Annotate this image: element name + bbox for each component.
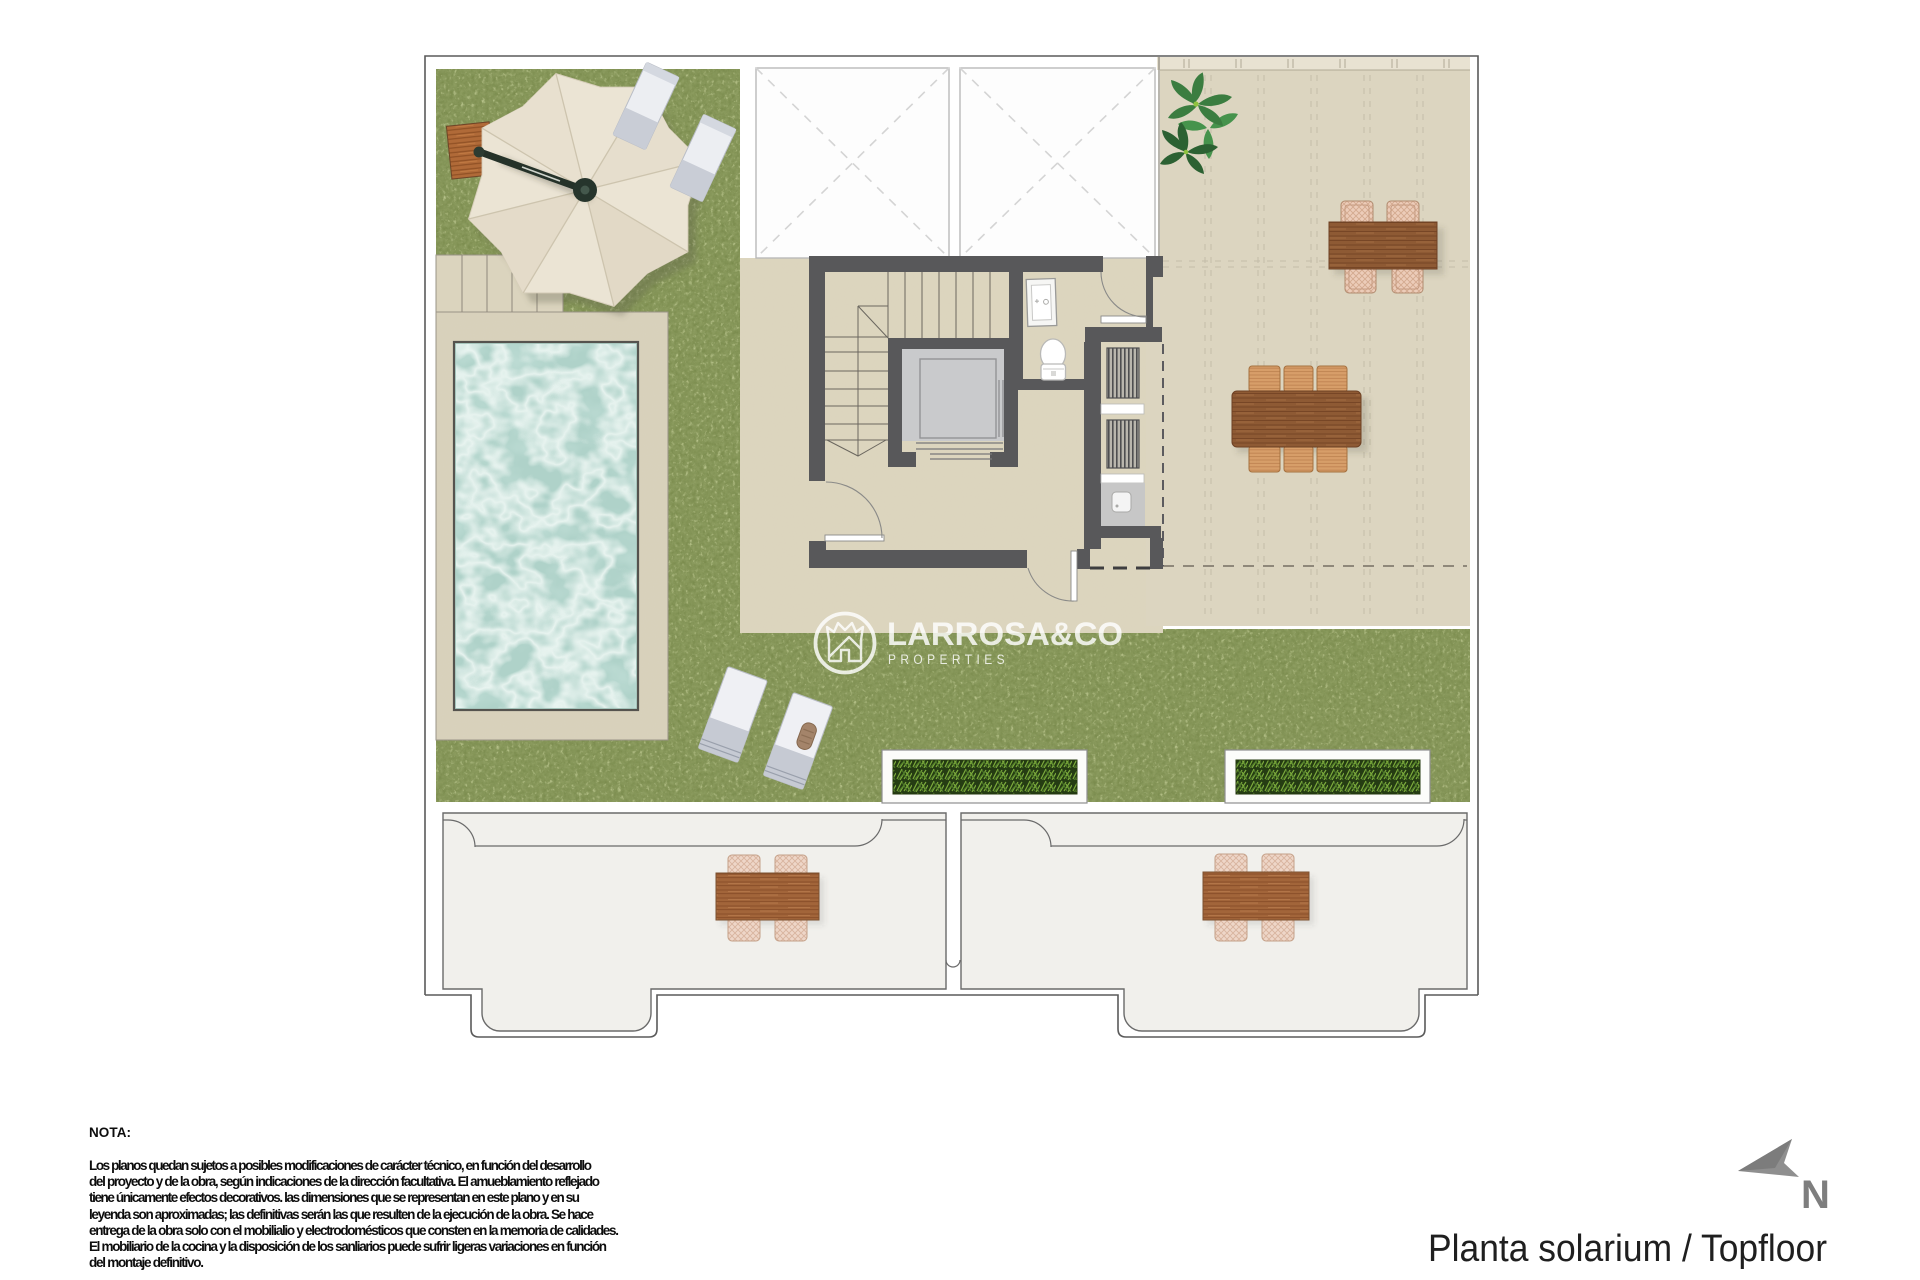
svg-text:del montaje definitivo.: del montaje definitivo. xyxy=(89,1255,204,1270)
svg-text:N: N xyxy=(1801,1173,1830,1217)
svg-text:LARROSA&CO: LARROSA&CO xyxy=(887,616,1123,652)
svg-text:entrega de la obra solo con el: entrega de la obra solo con el mobiliali… xyxy=(89,1223,619,1238)
svg-text:tiene únicamente efectos decor: tiene únicamente efectos decorativos. la… xyxy=(89,1190,580,1205)
svg-text:leyenda son aproximadas; las d: leyenda son aproximadas; las definitivas… xyxy=(89,1207,594,1222)
svg-text:del proyecto y de la obra, seg: del proyecto y de la obra, según indicac… xyxy=(89,1174,600,1189)
svg-text:El mobiliario de la cocina y l: El mobiliario de la cocina y la disposic… xyxy=(89,1239,607,1254)
svg-text:NOTA:: NOTA: xyxy=(89,1125,131,1140)
svg-text:Los planos quedan sujetos a po: Los planos quedan sujetos a posibles mod… xyxy=(89,1158,592,1173)
svg-text:Planta solarium / Topfloor: Planta solarium / Topfloor xyxy=(1428,1228,1827,1270)
svg-text:PROPERTIES: PROPERTIES xyxy=(888,652,1009,667)
